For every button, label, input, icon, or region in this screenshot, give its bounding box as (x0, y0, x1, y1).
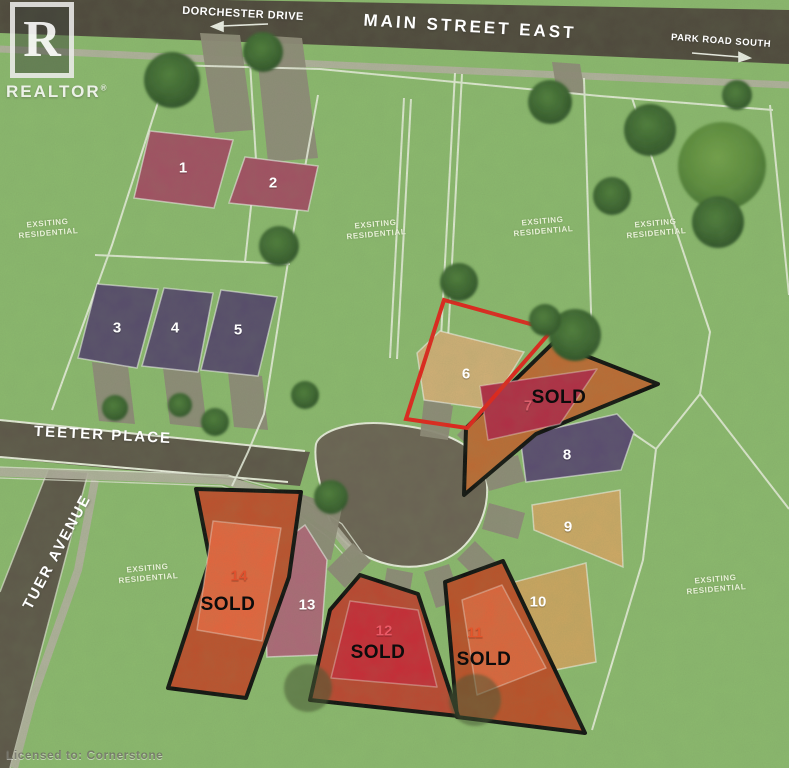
lot-number-8: 8 (563, 447, 571, 464)
lot-number-9: 9 (564, 519, 572, 536)
lot-number-4: 4 (171, 320, 179, 337)
lot-number-14: 14 (231, 568, 248, 585)
registered-trademark-symbol: ® (101, 83, 109, 92)
site-plan-map: DORCHESTER DRIVE MAIN STREET EAST PARK R… (0, 0, 789, 768)
realtor-logo-word: REALTOR (6, 82, 101, 101)
realtor-logo-text: REALTOR® (6, 82, 116, 102)
sold-badge-lot-7: SOLD (532, 387, 587, 409)
sold-badge-lot-14: SOLD (201, 594, 256, 616)
realtor-r-icon: R (23, 14, 61, 66)
license-watermark: Licensed to: Cornerstone (6, 748, 163, 762)
lot-number-5: 5 (234, 322, 242, 339)
sold-badge-lot-11: SOLD (457, 649, 512, 671)
realtor-logo: R REALTOR® (6, 2, 116, 102)
lot-number-13: 13 (299, 597, 316, 614)
lot-number-6: 6 (462, 366, 470, 383)
sold-badge-lot-12: SOLD (351, 642, 406, 664)
lot-number-2: 2 (269, 175, 277, 192)
lot-number-10: 10 (530, 594, 547, 611)
lot-number-12: 12 (376, 623, 393, 640)
realtor-logo-box: R (10, 2, 74, 78)
lot-number-11: 11 (467, 625, 483, 642)
lot-number-3: 3 (113, 320, 121, 337)
lot-number-1: 1 (179, 160, 187, 177)
